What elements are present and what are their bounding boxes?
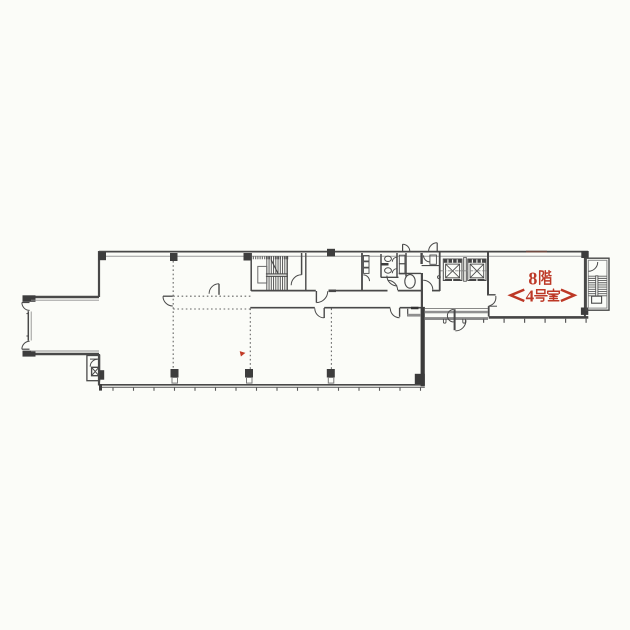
svg-text:8: 8 — [528, 268, 537, 288]
svg-text:4: 4 — [526, 286, 535, 305]
